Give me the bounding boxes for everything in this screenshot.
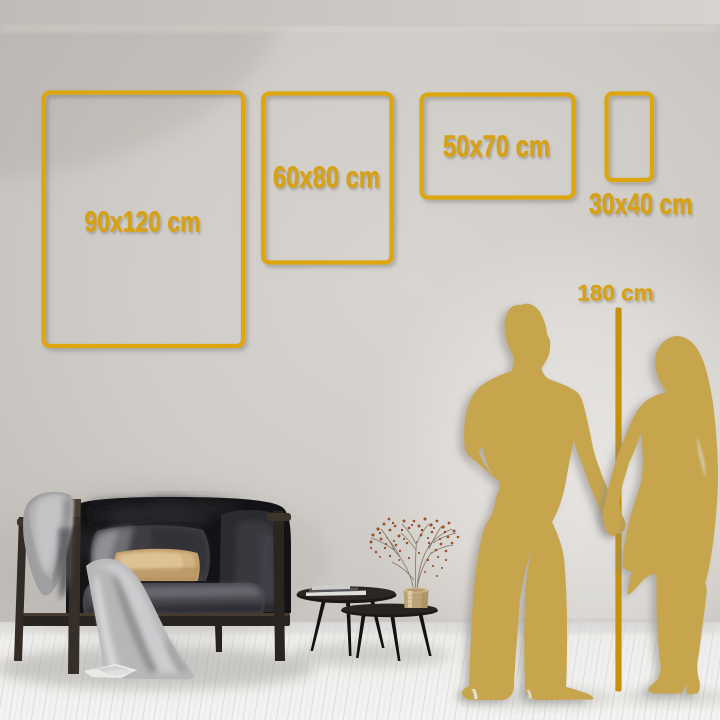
svg-text:180 cm: 180 cm [577, 281, 653, 306]
svg-text:90x120 cm: 90x120 cm [85, 205, 201, 238]
svg-text:30x40 cm: 30x40 cm [589, 187, 693, 220]
svg-text:60x80 cm: 60x80 cm [273, 160, 380, 195]
svg-text:50x70 cm: 50x70 cm [443, 128, 550, 163]
